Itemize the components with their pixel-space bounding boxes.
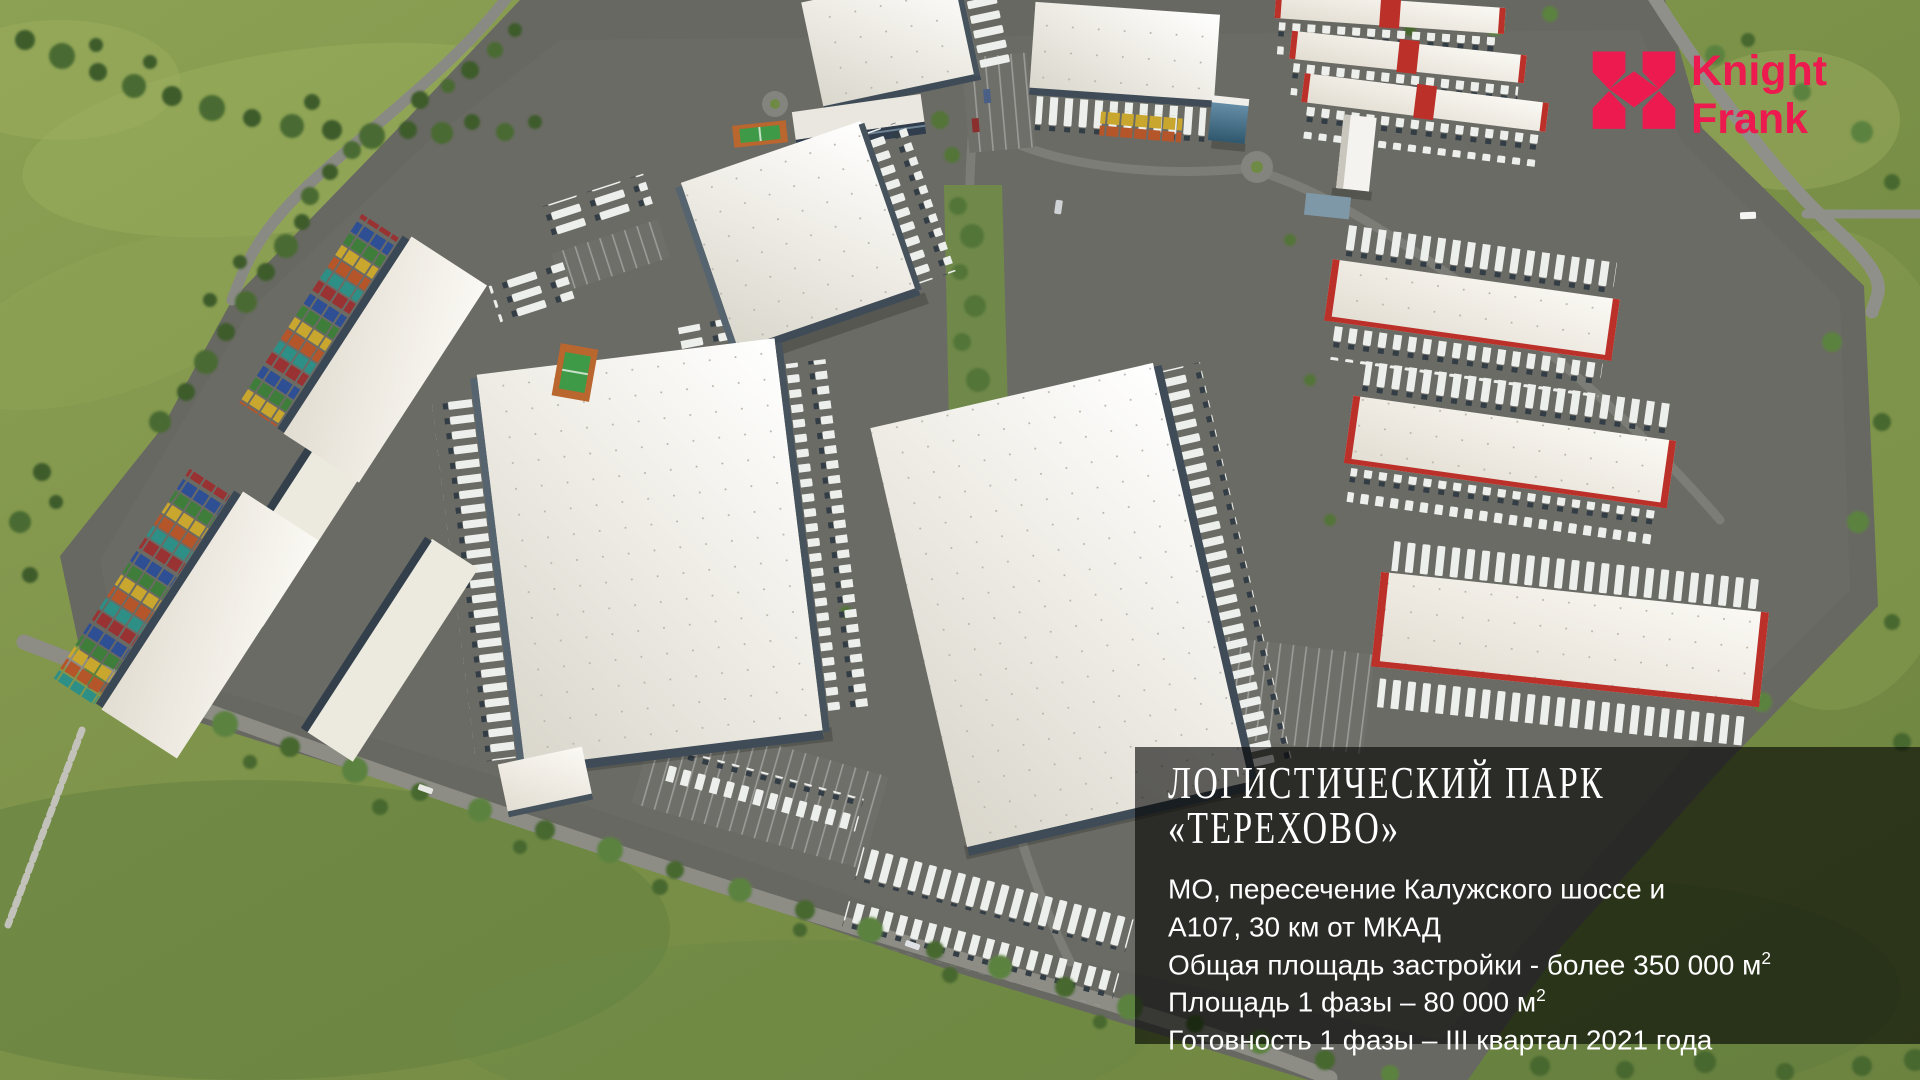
knight-frank-logo: Knight Frank (1591, 46, 1827, 143)
brand-wordmark: Knight Frank (1691, 47, 1827, 143)
project-title-line-2: «ТЕРЕХОВО» (1168, 805, 1705, 850)
info-line: Площадь 1 фазы – 80 000 м2 (1168, 980, 1894, 1018)
info-line: МО, пересечение Калужского шоссе и (1168, 867, 1894, 905)
brand-line-1: Knight (1691, 47, 1827, 95)
project-title-line-1: ЛОГИСТИЧЕСКИЙ ПАРК (1168, 760, 1705, 805)
project-title: ЛОГИСТИЧЕСКИЙ ПАРК «ТЕРЕХОВО» (1168, 760, 1705, 850)
office-tower (1207, 95, 1250, 152)
project-info: МО, пересечение Калужского шоссе и А107,… (1168, 867, 1894, 1056)
info-line: Готовность 1 фазы – III квартал 2021 год… (1168, 1018, 1894, 1056)
info-line: А107, 30 км от МКАД (1168, 905, 1894, 943)
brand-line-2: Frank (1691, 95, 1827, 143)
info-line: Общая площадь застройки - более 350 000 … (1168, 943, 1894, 981)
warehouse-building (429, 332, 872, 784)
knight-frank-mark-icon (1591, 46, 1677, 136)
slide: Knight Frank ЛОГИСТИЧЕСКИЙ ПАРК «ТЕРЕХОВ… (0, 0, 1920, 1080)
small-building (1304, 193, 1351, 220)
caption-panel: ЛОГИСТИЧЕСКИЙ ПАРК «ТЕРЕХОВО» МО, пересе… (1135, 747, 1920, 1044)
